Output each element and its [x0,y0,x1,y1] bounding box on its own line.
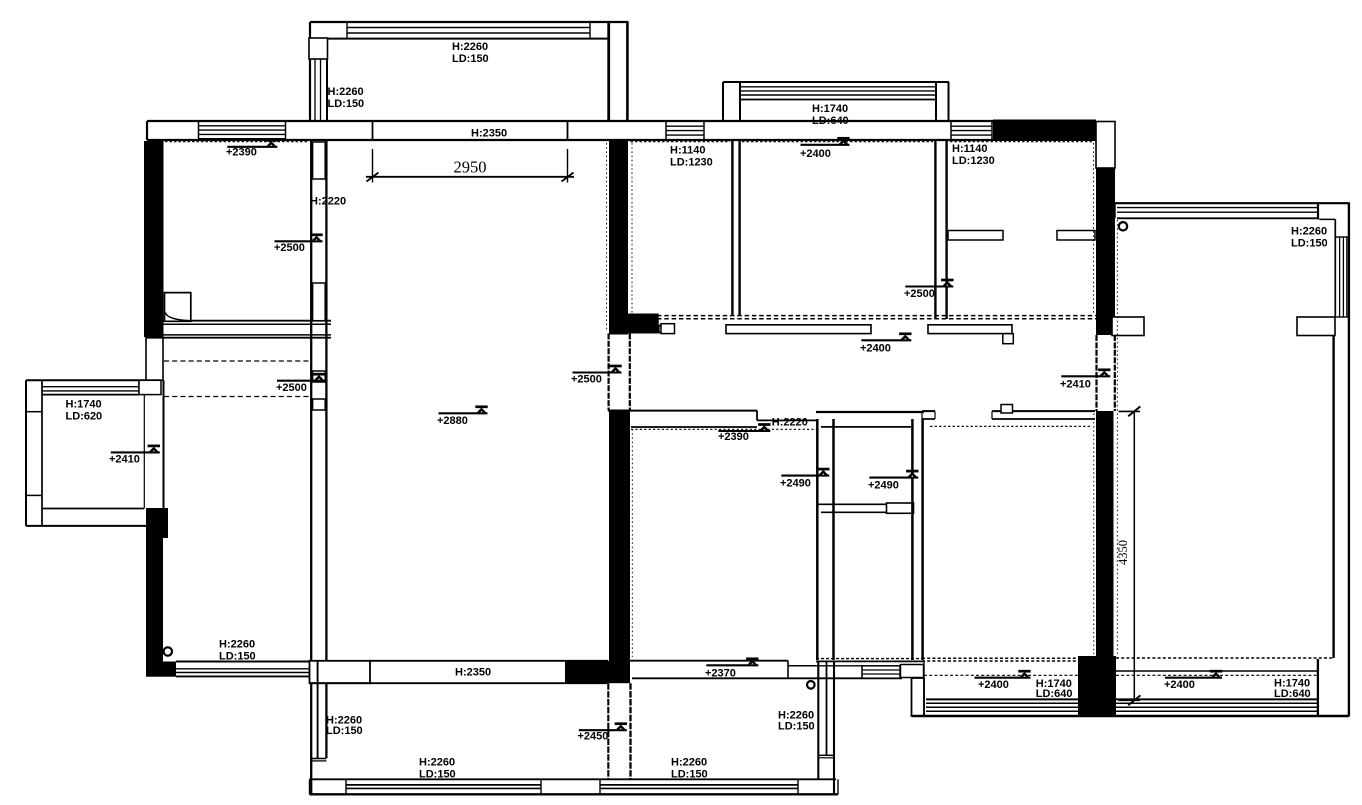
svg-text:LD:150: LD:150 [778,721,815,733]
svg-text:2950: 2950 [454,157,487,176]
svg-text:+2390: +2390 [226,146,257,158]
svg-text:H:1140: H:1140 [670,144,705,156]
svg-text:+2490: +2490 [868,479,899,491]
svg-text:+2400: +2400 [978,679,1009,691]
svg-text:H:2260: H:2260 [328,86,364,98]
svg-text:H:1140: H:1140 [952,143,987,155]
svg-text:+2400: +2400 [800,148,831,160]
svg-text:H:2260: H:2260 [671,757,707,769]
svg-text:LD:620: LD:620 [66,411,103,423]
svg-text:LD:150: LD:150 [326,725,363,737]
svg-text:+2500: +2500 [274,242,305,254]
svg-text:4350: 4350 [1116,540,1130,565]
svg-text:H:2350: H:2350 [455,667,491,679]
svg-text:+2400: +2400 [1164,679,1195,691]
svg-text:LD:1230: LD:1230 [952,155,995,167]
svg-text:LD:640: LD:640 [1274,688,1311,700]
svg-text:H:1740: H:1740 [66,399,102,411]
svg-text:LD:1230: LD:1230 [670,156,713,168]
svg-text:LD:150: LD:150 [219,651,256,663]
svg-text:H:2260: H:2260 [219,639,255,651]
svg-text:H:2220: H:2220 [310,196,346,208]
svg-text:+2410: +2410 [109,454,140,466]
svg-text:+2490: +2490 [780,477,811,489]
svg-text:H:2350: H:2350 [471,128,507,140]
svg-text:H:2260: H:2260 [452,41,488,53]
svg-text:+2500: +2500 [276,382,307,394]
svg-text:LD:150: LD:150 [1291,238,1328,250]
svg-text:LD:150: LD:150 [452,53,489,65]
svg-text:+2400: +2400 [860,342,891,354]
svg-text:H:2260: H:2260 [419,757,455,769]
svg-text:LD:640: LD:640 [1036,688,1073,700]
svg-text:LD:150: LD:150 [671,769,708,781]
svg-text:H:2220: H:2220 [772,416,808,428]
svg-text:+2390: +2390 [718,431,749,443]
svg-text:H:1740: H:1740 [812,103,848,115]
svg-text:LD:150: LD:150 [328,98,365,110]
svg-text:+2450: +2450 [578,730,609,742]
svg-text:LD:640: LD:640 [812,115,849,127]
svg-text:+2500: +2500 [571,374,602,386]
svg-text:+2500: +2500 [904,288,935,300]
svg-text:+2410: +2410 [1060,378,1091,390]
svg-text:H:2260: H:2260 [1291,226,1327,238]
svg-text:+2880: +2880 [437,415,468,427]
svg-text:LD:150: LD:150 [419,769,456,781]
svg-text:+2370: +2370 [705,667,736,679]
